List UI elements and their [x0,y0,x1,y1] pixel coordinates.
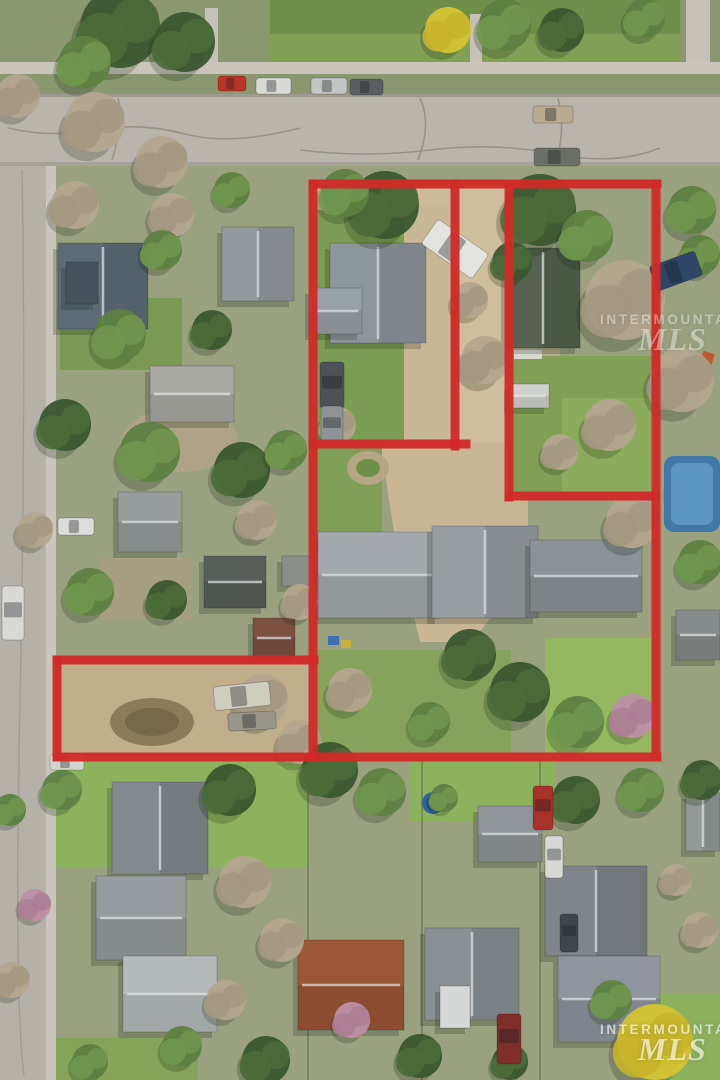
roof-shading [530,576,642,612]
tree-canopy [673,868,692,887]
garage-roof [282,556,312,586]
vehicle-windshield [535,799,551,811]
tree-canopy [697,916,718,937]
tree-canopy [465,635,495,665]
tree-canopy [157,142,187,172]
road-edge [0,162,720,166]
tree-canopy [467,286,488,307]
vehicle-windshield [230,686,248,708]
roof-shading [150,394,234,422]
roof-shading [478,834,542,862]
tree-canopy [178,1030,201,1053]
tree-canopy [648,1012,692,1056]
aerial-listing-photo: INTERMOUNTAIN MLS INTERMOUNTAIN MLS [0,0,720,1080]
vehicle-windshield [562,925,576,936]
tree-canopy [253,504,276,527]
tree-canopy [696,239,719,262]
tree-canopy [32,893,51,912]
tree-canopy [163,584,186,607]
tree-canopy [515,669,550,704]
vehicle-windshield [322,376,342,389]
tree-canopy [688,191,716,219]
vehicle-windshield [545,108,556,121]
tree-canopy [638,773,664,799]
tree-canopy [208,314,231,337]
playset [328,636,339,645]
vehicle-windshield [4,602,22,617]
tree-canopy [90,99,125,134]
tree-canopy [608,984,631,1007]
playset [341,640,351,648]
tree-canopy [573,702,603,732]
aerial-scene [0,0,720,1080]
tree-canopy [71,186,99,214]
roof-shading [118,522,182,552]
tree-canopy [14,79,40,105]
tree-canopy [145,429,180,464]
tree-canopy [557,438,578,459]
tree-canopy [346,673,372,699]
roof-shading [318,575,440,618]
tree-canopy [641,2,664,25]
tree-canopy [60,405,90,435]
tree-canopy [225,770,255,800]
roof-shading [310,311,362,334]
tree-canopy [481,341,509,369]
tree-canopy [444,12,471,39]
roof-shading [253,638,295,658]
tree-canopy [349,1006,370,1027]
tree-canopy [572,781,600,809]
vehicle-windshield [69,520,79,533]
vehicle-windshield [242,714,256,729]
tree-canopy [605,405,635,435]
driveway-top-right [686,0,710,62]
tree-canopy [180,19,215,54]
roof-shading [96,918,186,960]
tree-canopy [32,516,53,537]
vehicle-windshield [360,81,369,93]
tree-canopy [416,1039,442,1065]
tree-canopy [378,773,406,801]
pool-water [671,463,713,525]
roof-shading [509,396,549,408]
tree-canopy [262,1041,290,1069]
tree-canopy [158,234,181,257]
vehicle-windshield [322,80,332,92]
tree-canopy [441,787,457,803]
tree-canopy [222,984,245,1007]
tree-canopy [278,923,304,949]
roof-shading [676,635,720,660]
tree-canopy [283,434,306,457]
vehicle-windshield [548,150,561,164]
tree-canopy [676,355,713,392]
tree-canopy [240,862,270,892]
vehicle-windshield [499,1029,519,1043]
roof-shading [204,582,266,608]
dirt-mound-core [125,708,179,736]
tree-canopy [168,198,194,224]
roof-shading [258,227,294,301]
tree-canopy [58,774,81,797]
tree-canopy [87,1048,108,1069]
vehicle-windshield [226,78,234,89]
garden-circle-center [356,459,380,477]
tree-canopy [582,216,612,246]
tree-canopy [229,176,250,197]
roof-shading [596,866,647,956]
roof-shading [378,243,426,343]
vehicle-windshield [547,849,561,861]
roof-shading [472,928,519,1020]
tree-canopy [629,699,655,725]
tree-canopy [558,13,584,39]
porch-roof [440,986,470,1028]
tree-canopy [500,5,530,35]
tree-canopy [115,315,145,345]
tree-canopy [86,573,114,601]
solar-panels [66,262,98,304]
tree-canopy [7,798,26,817]
vehicle-windshield [323,417,341,428]
tree-canopy [9,966,30,987]
tree-canopy [80,42,110,72]
vehicle-windshield [267,80,277,92]
tree-canopy [426,706,449,729]
